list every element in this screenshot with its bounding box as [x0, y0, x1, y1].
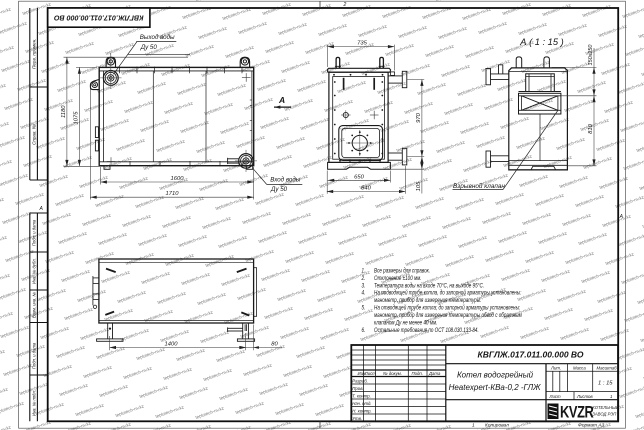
svg-text:Температура воды на входе 70°С: Температура воды на входе 70°С, на выход… — [374, 283, 484, 290]
svg-text:Остальные требования по ОСТ 10: Остальные требования по ОСТ 108.030.133-… — [374, 328, 479, 335]
svg-text:3.: 3. — [362, 283, 366, 290]
svg-text:80: 80 — [271, 342, 278, 348]
svg-text:KVZR: KVZR — [560, 404, 594, 422]
svg-text:1075: 1075 — [74, 111, 80, 125]
svg-text:5.: 5. — [362, 305, 366, 312]
svg-text:735: 735 — [357, 40, 367, 46]
svg-text:Копировал: Копировал — [485, 422, 509, 428]
svg-text:А: А — [39, 206, 44, 212]
svg-text:А: А — [278, 95, 285, 105]
svg-text:Листов: Листов — [576, 394, 593, 399]
svg-text:6.: 6. — [362, 328, 366, 335]
svg-text:1.: 1. — [362, 268, 366, 275]
svg-text:Взрывной клапан: Взрывной клапан — [453, 182, 505, 190]
svg-text:Подп.: Подп. — [412, 371, 423, 376]
svg-text:Перв. примен.: Перв. примен. — [32, 38, 37, 69]
svg-text:Взам. инв. №: Взам. инв. № — [32, 292, 37, 318]
svg-text:1 : 15: 1 : 15 — [598, 381, 613, 387]
svg-text:КВГЛЖ.017.011.00.000 ВО: КВГЛЖ.017.011.00.000 ВО — [54, 14, 144, 23]
svg-text:Н. контр.: Н. контр. — [352, 408, 371, 413]
svg-text:А: А — [619, 214, 624, 220]
svg-text:На отводящей трубе котла; до з: На отводящей трубе котла; до запорной ар… — [374, 304, 521, 312]
svg-text:150х250: 150х250 — [588, 45, 594, 66]
svg-text:Ду 50: Ду 50 — [140, 44, 158, 51]
svg-text:Дата: Дата — [428, 371, 441, 376]
svg-text:Подп. и дата: Подп. и дата — [32, 219, 37, 246]
svg-text:105: 105 — [416, 181, 422, 191]
svg-text:Разраб.: Разраб. — [352, 378, 368, 383]
svg-text:КОТЕЛЬНЫЙ: КОТЕЛЬНЫЙ — [592, 405, 618, 410]
svg-text:Вход воды: Вход воды — [270, 177, 300, 184]
svg-text:840: 840 — [361, 186, 371, 192]
svg-text:Котел водогрейный: Котел водогрейный — [457, 371, 534, 380]
svg-text:Формат А3: Формат А3 — [578, 422, 605, 428]
svg-text:манометр, прибор для измерения: манометр, прибор для измерения температу… — [374, 313, 522, 320]
svg-text:Масса: Масса — [573, 365, 586, 370]
svg-text:Инв. № подл.: Инв. № подл. — [32, 390, 37, 416]
svg-text:Инв. № дубл.: Инв. № дубл. — [32, 258, 37, 284]
svg-text:Справ. №: Справ. № — [32, 124, 37, 145]
svg-text:1: 1 — [472, 422, 475, 428]
svg-text:1400: 1400 — [165, 342, 179, 348]
svg-text:Отклонение ±100 мм.: Отклонение ±100 мм. — [374, 275, 422, 282]
svg-text:Подп. и дата: Подп. и дата — [32, 342, 37, 369]
svg-text:970: 970 — [416, 112, 422, 122]
svg-text:Все размеры для справок.: Все размеры для справок. — [374, 268, 430, 275]
svg-text:Утв.: Утв. — [352, 416, 362, 421]
svg-text:Нач. отд.: Нач. отд. — [352, 401, 371, 406]
svg-text:№ докум.: № докум. — [383, 371, 402, 376]
svg-text:Лист: Лист — [549, 394, 561, 399]
svg-text:810: 810 — [588, 123, 594, 133]
svg-text:ЗАВОД РЭП: ЗАВОД РЭП — [592, 412, 617, 417]
svg-text:Ду 50: Ду 50 — [270, 186, 288, 193]
svg-text:КВГЛЖ.017.011.00.000 ВО: КВГЛЖ.017.011.00.000 ВО — [478, 349, 584, 359]
svg-text:2: 2 — [343, 2, 347, 8]
svg-text:Т. контр.: Т. контр. — [352, 393, 371, 398]
svg-text:На подводящей трубе котла, до: На подводящей трубе котла, до запорной а… — [374, 289, 522, 297]
svg-text:Масштаб: Масштаб — [597, 365, 618, 370]
svg-text:1710: 1710 — [166, 191, 180, 197]
svg-text:Пров.: Пров. — [352, 386, 363, 391]
svg-text:Лист: Лист — [364, 371, 376, 376]
svg-text:4.: 4. — [362, 290, 366, 297]
svg-text:Heatexpert-КВа-0,2 -ГЛЖ: Heatexpert-КВа-0,2 -ГЛЖ — [449, 383, 542, 392]
svg-text:Лит.: Лит. — [550, 365, 561, 370]
svg-text:1180: 1180 — [61, 105, 67, 118]
svg-text:манометр, прибор для измерения: манометр, прибор для измерения температу… — [374, 298, 481, 305]
svg-text:650: 650 — [354, 174, 364, 180]
svg-text:1600: 1600 — [171, 176, 185, 182]
svg-text:2.: 2. — [361, 275, 366, 282]
svg-text:А ( 1 : 15 ): А ( 1 : 15 ) — [519, 37, 563, 47]
svg-text:Выход воды: Выход воды — [140, 34, 175, 41]
svg-text:клапаном Ду не менее 40 мм.: клапаном Ду не менее 40 мм. — [374, 320, 437, 327]
